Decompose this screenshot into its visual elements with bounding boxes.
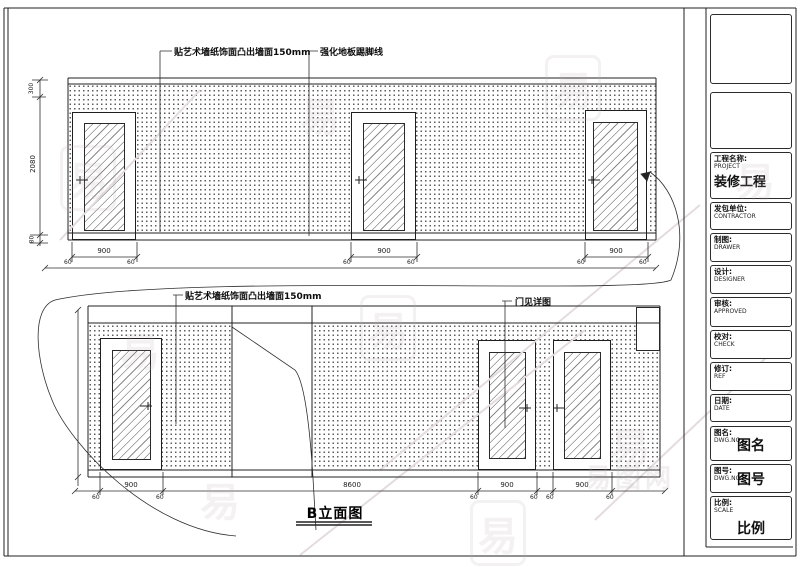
note-wallpaper-top: 贴艺术墙纸饰面凸出墙面150mm [174, 45, 311, 58]
dim-offset: 60 [407, 259, 415, 266]
dim-top-door3-width: 900 [596, 247, 636, 255]
dim-top-door1-width: 900 [84, 247, 124, 255]
bottom-elevation-outline [88, 306, 660, 477]
title-block-dwg-name: 图名: DWG.NO 图名 [710, 426, 792, 461]
dim-offset: 60 [156, 494, 164, 501]
dim-top-door2-width: 900 [364, 247, 404, 255]
designer-label-en: DESIGNER [714, 277, 788, 284]
dim-offset: 60 [546, 494, 554, 501]
dim-offset: 60 [639, 259, 647, 266]
drawer-label-en: DRAWER [714, 245, 788, 252]
title-block-date: 日期: DATE [710, 394, 792, 422]
top-dimension-lines [30, 77, 659, 271]
cad-sheet: 贴艺术墙纸饰面凸出墙面150mm 强化地板踢脚线 贴艺术墙纸饰面凸出墙面150m… [0, 0, 800, 567]
check-label-en: CHECK [714, 342, 788, 349]
dim-offset: 60 [64, 259, 72, 266]
title-block-drawer: 制图: DRAWER [710, 233, 792, 262]
dim-offset: 60 [92, 494, 100, 501]
dim-top-margin: 300 [28, 83, 35, 94]
dim-wall-height: 2080 [29, 151, 37, 177]
approved-label-en: APPROVED [714, 309, 788, 316]
dim-offset: 60 [127, 259, 135, 266]
sheet-border [4, 8, 796, 556]
scale-value: 比例 [714, 518, 788, 538]
title-block-dwg-no: 图号: DWG.NO 图号 [710, 464, 792, 493]
top-elevation-outline [68, 78, 656, 240]
title-block-ref: 修订: REF [710, 362, 792, 391]
dim-offset: 60 [343, 259, 351, 266]
note-wallpaper-bottom: 贴艺术墙纸饰面凸出墙面150mm [185, 289, 322, 302]
note-skirting: 强化地板踢脚线 [320, 45, 383, 58]
ref-label: 修订: [714, 365, 788, 374]
dim-bottom-total-width: 8600 [322, 481, 382, 489]
date-label-en: DATE [714, 406, 788, 413]
title-block-box-empty-2 [710, 92, 792, 149]
title-block-project: 工程名称: PROJECT 装修工程 [710, 152, 792, 199]
dim-bottom-door2-width: 900 [487, 481, 527, 489]
dim-offset: 60 [470, 494, 478, 501]
dim-bottom-door1-width: 900 [111, 481, 151, 489]
title-block-approved: 审核: APPROVED [710, 297, 792, 327]
contractor-label-en: CONTRACTOR [714, 214, 788, 221]
note-door-detail: 门见详图 [515, 295, 551, 308]
title-block-designer: 设计: DESIGNER [710, 265, 792, 294]
title-block-scale: 比例: SCALE 比例 [710, 496, 792, 540]
dim-offset: 60 [577, 259, 585, 266]
title-block-check: 校对: CHECK [710, 330, 792, 359]
dim-bottom-door3-width: 900 [562, 481, 602, 489]
ref-label-en: REF [714, 374, 788, 381]
project-label-en: PROJECT [714, 164, 788, 171]
scale-label-en: SCALE [714, 508, 788, 515]
title-block-contractor: 发包单位: CONTRACTOR [710, 202, 792, 230]
figure-title: B立面图 [280, 503, 390, 523]
dim-offset: 60 [606, 494, 614, 501]
project-value: 装修工程 [714, 171, 788, 190]
dim-skirting-height: 80 [28, 236, 35, 244]
door-handle-icons [76, 176, 600, 412]
title-block-box-empty-1 [710, 14, 792, 84]
dim-offset: 60 [530, 494, 538, 501]
